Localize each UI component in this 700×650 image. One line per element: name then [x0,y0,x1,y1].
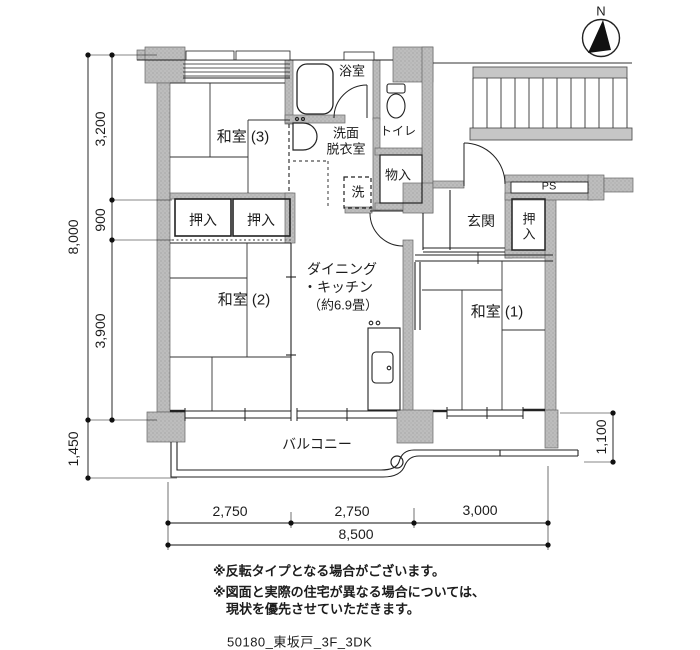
dim-bottom-total: 8,500 [338,527,373,541]
note-line2: ※図面と実際の住宅が異なる場合については、 [213,586,485,599]
walls [137,47,633,448]
kitchen-sink-icon [368,321,400,410]
room-label-genkan: 玄関 [467,214,495,228]
dim-bottom-right: 3,000 [462,503,497,517]
balcony-drain-icon [391,456,403,468]
dim-bottom-mid: 2,750 [334,504,369,518]
dim-left-total: 8,000 [66,219,80,254]
bath-door [334,85,367,118]
entrance-door [464,143,505,186]
note-line1: ※反転タイプとなる場合がございます。 [213,565,445,578]
room-label-storage: 物入 [385,169,411,182]
room-label-dk-line2: ・キッチン [303,280,373,294]
room-label-senmen-line1: 洗面 [333,127,359,140]
dim-left-bottom: 3,900 [93,313,107,348]
room-label-laundry: 洗 [351,186,364,199]
north-label: N [596,5,605,18]
room-label-dk-line3: （約6.9畳） [308,299,378,312]
toilet-icon [387,84,405,118]
plan-id: 50180_東坂戸_3F_3DK [227,636,372,649]
windows [185,407,523,421]
stairs [433,63,632,140]
room-label-washitsu2: 和室 (2) [218,293,271,308]
dim-left-top: 3,200 [93,111,107,146]
dim-balcony-left: 1,450 [66,431,80,466]
room-label-balcony: バルコニー [282,437,352,451]
room-label-bath: 浴室 [339,65,365,78]
dim-left-mid: 900 [93,208,107,231]
note-line3: 現状を優先させていただきます。 [226,603,420,616]
balcony-railing [171,442,578,477]
dim-bottom-left: 2,750 [212,504,247,518]
room-label-dk-line1: ダイニング [307,262,377,276]
dk-door [370,211,403,246]
room-label-washitsu1: 和室 (1) [471,305,524,320]
room-label-senmen-line2: 脱衣室 [326,143,365,156]
room-label-closet-right: 押入 [247,213,275,227]
floor-plan-page: 和室 (3) 押入 押入 和室 (2) ダイニング ・キッチン （約6.9畳） … [0,0,700,650]
room-label-toilet: トイレ [380,125,416,137]
north-arrow-icon [583,20,620,57]
room-label-closet-entry: 押入 [522,212,535,242]
dim-balcony-right: 1,100 [594,419,608,454]
bathtub-icon [297,64,333,114]
room-label-washitsu3: 和室 (3) [217,130,270,145]
room-label-closet-left: 押入 [189,213,217,227]
room-label-ps: PS [542,182,557,193]
